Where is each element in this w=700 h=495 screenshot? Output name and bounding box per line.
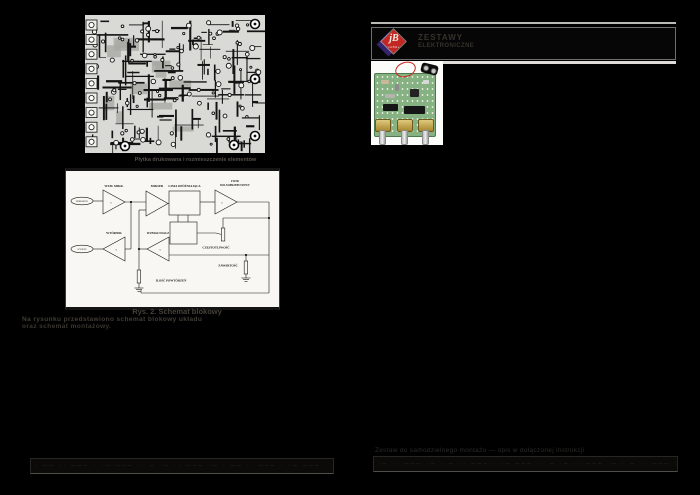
publisher-banner: jB JABEL ZESTAWY ELEKTRONICZNE [371,27,676,60]
magazine-page: Płytka drukowana i rozmieszczenie elemen… [0,0,700,495]
label-amplifier: WZMACNIACZ [147,231,170,235]
label-filter-1: FILTR [231,180,239,183]
component [385,94,395,98]
label-repeats: ILOŚĆ POWTÓRZEŃ [156,278,188,283]
battery-snap [422,65,429,72]
header-top-rule [371,22,676,24]
pcb-copper-layout-image [85,15,265,153]
footer-marks: ·– ·· ––– ·– · – ·· ––– · ·– ––– ·· – ·–… [374,457,677,470]
pcb-layout-caption: Płytka drukowana i rozmieszczenie elemen… [118,157,273,163]
dip-ic [404,106,425,114]
mic-amp-triangle [103,190,125,214]
body-text-line: Na rysunku przedstawiono schemat blokowy… [22,316,237,323]
footer-bar-left: · –– ·· ––– · ·– ––– ·· – ·– ·· ––– ·– ·… [30,458,334,474]
label-output: WYJŚCIE [77,248,87,251]
label-mixer: MIKSER [151,184,164,188]
amp-gain-mark: > [110,201,112,205]
component [381,80,389,84]
label-mic-amp: WZM. MIKR. [104,184,123,188]
label-mic-input: MIKROFON [76,201,88,203]
pcb-copper-layout-figure [85,15,265,153]
pot-shaft [401,130,408,145]
logo-name: JABEL [385,45,403,49]
label-depth: ZAWARTOŚĆ [218,263,237,268]
pot-shaft [379,130,386,145]
freq-pot-symbol [221,228,225,241]
page-header: jB JABEL ZESTAWY ELEKTRONICZNE [371,22,676,64]
ground-symbol [242,278,251,281]
component [423,80,429,84]
block-diagram-drawing: WZM. MIKR. MIKSER LINIA OPÓŹNIAJĄCA FILT… [66,171,279,307]
label-buffer: WTÓRNIK [106,230,122,235]
body-text-line: oraz schemat montażowy. [22,323,162,330]
battery-snap [430,67,437,74]
repeats-pot-symbol [137,270,141,283]
filter-triangle [215,190,237,214]
footer-bar-right: ·– ·· ––– ·– · – ·· ––– · ·– ––– ·· – ·–… [373,456,678,472]
banner-text: ZESTAWY ELEKTRONICZNE [418,33,474,51]
filter-mark: > [221,201,223,205]
banner-text-line1: ZESTAWY [418,33,474,42]
label-delay-line: LINIA OPÓŹNIAJĄCA [168,183,201,188]
depth-pot-symbol [244,261,248,274]
label-frequency: CZĘSTOTLIWOŚĆ [202,245,229,250]
jabel-logo: jB JABEL [377,29,411,58]
footer-marks: · –– ·· ––– · ·– ––– ·· – ·– ·· ––– ·– ·… [31,459,333,472]
block-diagram-caption: Rys. 2. Schemat blokowy [118,307,236,316]
delay-line-block [169,191,200,215]
block-diagram-figure: WZM. MIKR. MIKSER LINIA OPÓŹNIAJĄCA FILT… [65,168,280,310]
control-block [170,222,197,244]
kit-caption: Zestaw do samodzielnego montażu — opis w… [375,447,657,454]
square-ic [410,89,419,97]
amp-mark: < [159,248,161,252]
mixer-triangle [146,191,168,216]
component [395,84,399,91]
dip-ic [383,104,398,111]
logo-letters: jB [385,33,403,44]
pot-shaft [422,130,429,145]
ground-symbol [135,288,144,291]
banner-text-line2: ELEKTRONICZNE [418,42,474,51]
assembled-board-photo [371,61,443,145]
label-filter-2: DOLNOPRZEPUSTOWY [220,184,250,187]
buffer-mark: < [115,248,117,252]
